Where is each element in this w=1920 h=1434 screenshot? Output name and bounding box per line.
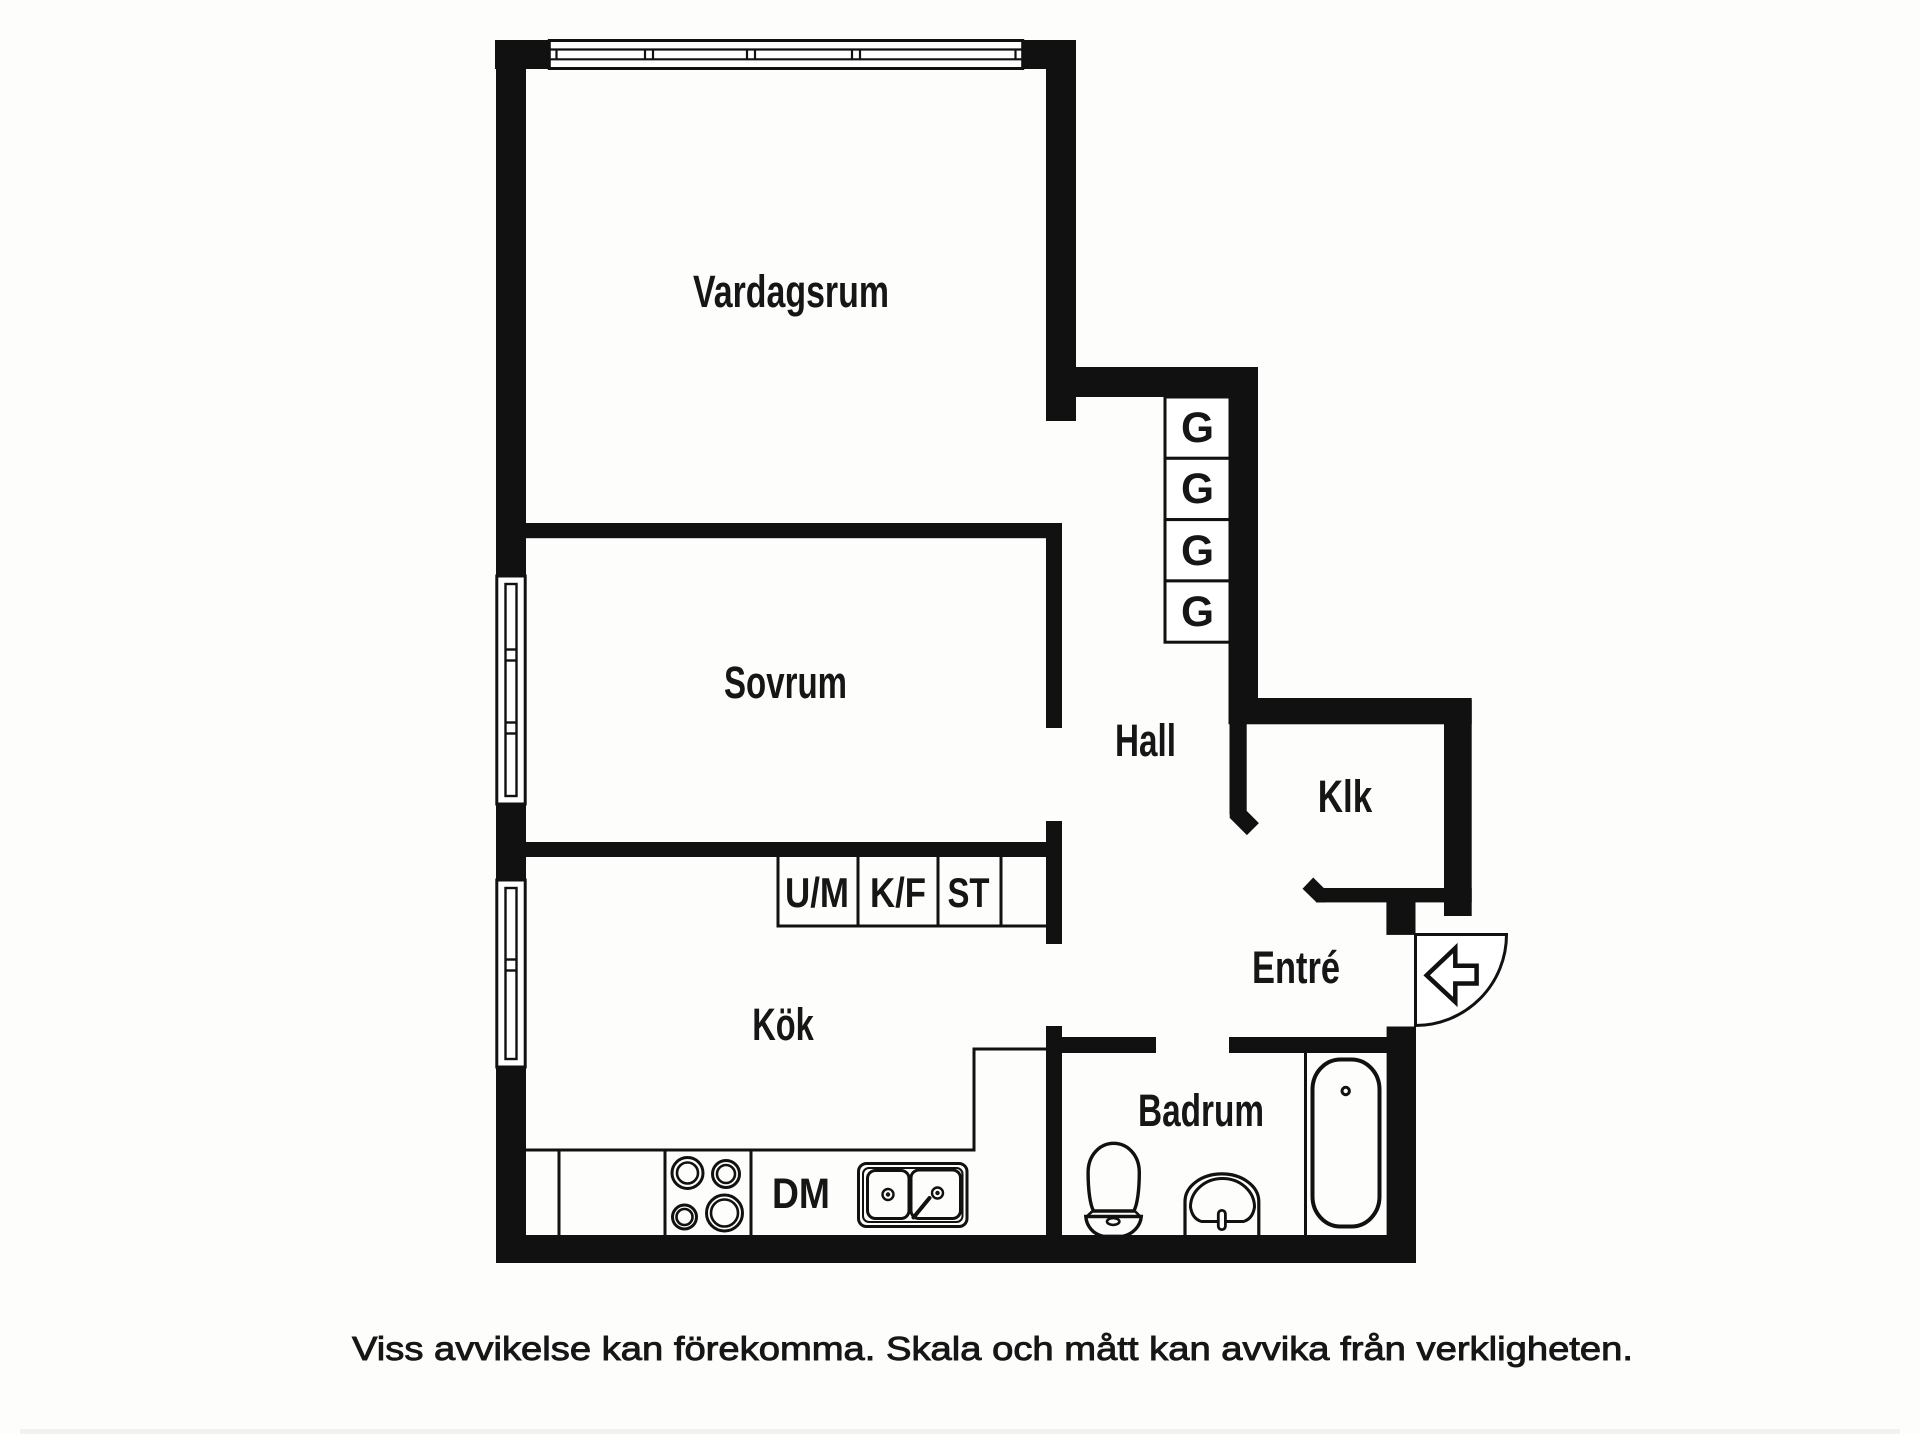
svg-text:Hall: Hall xyxy=(1115,715,1176,766)
svg-text:G: G xyxy=(1181,405,1214,452)
svg-text:K/F: K/F xyxy=(870,869,926,916)
svg-text:Klk: Klk xyxy=(1318,771,1373,822)
svg-text:Entré: Entré xyxy=(1252,942,1340,993)
svg-text:Viss avvikelse kan förekomma.: Viss avvikelse kan förekomma. Skala och … xyxy=(352,1330,1633,1367)
svg-text:DM: DM xyxy=(772,1170,830,1218)
svg-text:Sovrum: Sovrum xyxy=(724,657,847,708)
svg-text:Vardagsrum: Vardagsrum xyxy=(693,266,889,317)
svg-text:ST: ST xyxy=(948,869,990,916)
svg-text:G: G xyxy=(1181,466,1214,513)
svg-text:Kök: Kök xyxy=(752,999,814,1050)
svg-text:G: G xyxy=(1181,528,1214,575)
svg-text:G: G xyxy=(1181,589,1214,636)
svg-text:Badrum: Badrum xyxy=(1138,1085,1264,1136)
svg-text:U/M: U/M xyxy=(785,869,849,916)
